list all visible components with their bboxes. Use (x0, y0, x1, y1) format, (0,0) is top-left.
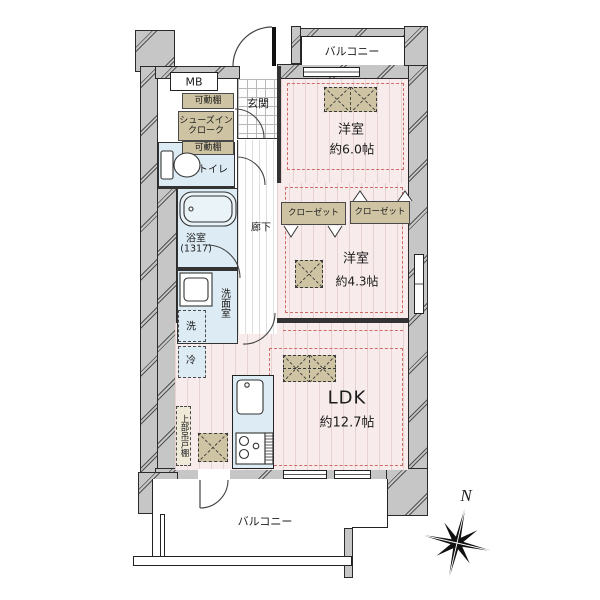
window-ldk-bottom-2 (334, 470, 371, 479)
label-corridor: 廊下 (251, 219, 271, 234)
opening-entrance-door (240, 64, 277, 79)
label-ldk-name: LDK (328, 388, 367, 409)
label-washroom: 洗面室 (217, 288, 232, 318)
label-bedroom1-name: 洋室 (338, 119, 364, 138)
window-ldk-bottom-1 (283, 470, 327, 479)
label-washer: 洗 (186, 318, 196, 333)
marker-kitchen (198, 433, 228, 462)
room-bath (177, 188, 238, 268)
label-balcony-bottom: バルコニー (238, 513, 293, 529)
entrance-door-icon (233, 27, 274, 66)
shelf-top-label: 可動棚 (194, 96, 221, 106)
closet-left: クローゼット (281, 202, 346, 225)
label-entrance: 玄関 (247, 95, 269, 111)
label-bath-name: 浴室 (186, 230, 206, 245)
label-ldk-size: 約12.7帖 (320, 412, 375, 431)
entrance-step-line (237, 138, 277, 139)
floorplan: 可動棚 シューズインクローク 可動棚 クローゼット クローゼット (0, 0, 600, 600)
sic-line2: クローク (179, 126, 233, 136)
label-bath-size: (1317) (180, 244, 212, 255)
balcony-rail-left (160, 514, 165, 557)
closet-left-label: クローゼット (288, 209, 339, 219)
balcony-topright-block (404, 26, 428, 66)
shoes-in-closet: シューズインクローク (178, 111, 234, 141)
compass-icon (420, 506, 494, 580)
label-balcony-top: バルコニー (325, 43, 380, 59)
kitchen-counter (232, 375, 274, 469)
label-fridge: 冷 (186, 352, 196, 367)
zone-ldk-upper-line (283, 330, 403, 331)
label-bedroom2-size: 約4.3帖 (335, 273, 378, 290)
window-bedroom2-right (414, 254, 424, 314)
label-mb: MB (185, 76, 202, 89)
balcony-step-line (352, 527, 388, 528)
label-toilet: トイレ (198, 161, 228, 176)
marker-bed-6 (324, 87, 377, 112)
balcony-top-leftbar (291, 26, 301, 64)
label-upper-cabinet: 上部吊戸棚 (178, 415, 190, 458)
marker-dining (283, 355, 336, 382)
balcony-bottom-lower (152, 528, 352, 558)
wall-left-extension (157, 186, 177, 474)
shelf-bottom-label: 可動棚 (194, 143, 221, 153)
sic-line1: シューズイン (179, 116, 233, 126)
closet-right: クローゼット (350, 201, 410, 224)
wall-bottomright-block (386, 468, 428, 516)
marker-bed-43 (295, 260, 323, 288)
shelf-top: 可動棚 (182, 93, 234, 109)
window-bedroom1-balcony (303, 67, 360, 77)
closet-right-label: クローゼット (354, 208, 405, 218)
shelf-bottom: 可動棚 (182, 141, 234, 155)
label-bedroom1-size: 約6.0帖 (330, 139, 375, 158)
balcony-right-bar (344, 528, 353, 578)
balcony-rail-bottom (133, 556, 352, 566)
floor-corridor (237, 140, 277, 334)
opening-ldk-balcony-door (198, 469, 230, 479)
label-bedroom2-name: 洋室 (343, 248, 369, 267)
label-compass-north: N (460, 486, 471, 506)
wall-left (140, 66, 158, 474)
